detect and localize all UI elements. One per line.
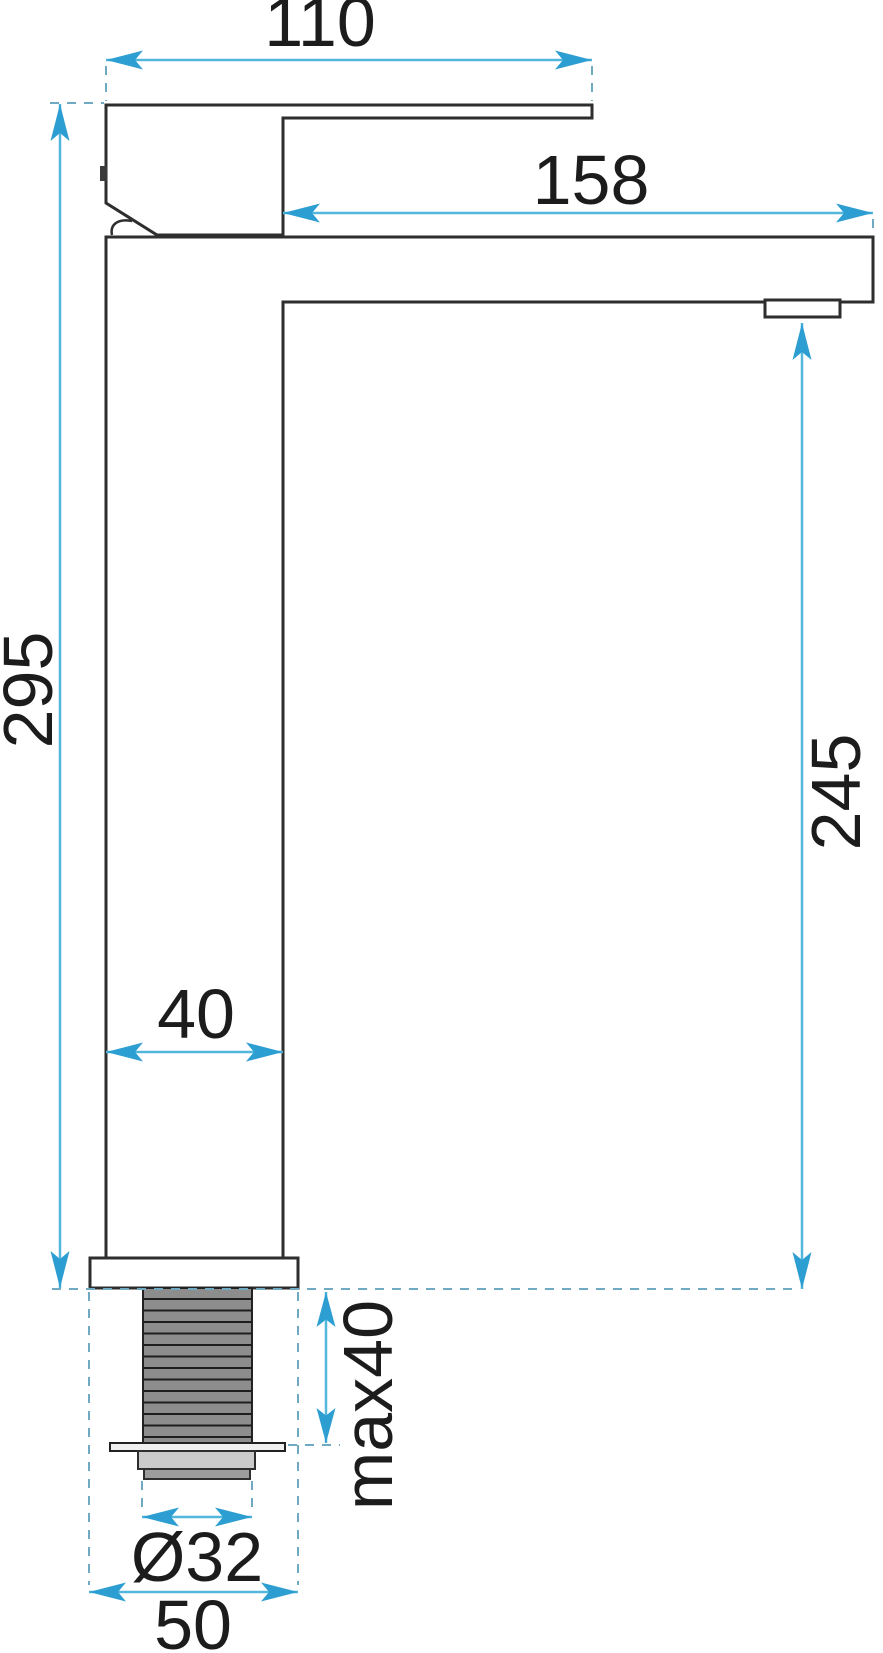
dim-total-height: 295 <box>0 104 70 1288</box>
faucet-body <box>90 105 873 1479</box>
dim-total-height-label: 295 <box>0 632 67 749</box>
aerator <box>765 300 840 317</box>
dim-thread-diameter: Ø32 <box>131 1508 263 1597</box>
dim-handle-width: 110 <box>106 0 592 70</box>
dim-spout-reach: 158 <box>283 141 873 223</box>
mounting-washer <box>110 1443 285 1451</box>
drawing-canvas: 110 158 295 245 40 max40 Ø <box>0 0 883 1653</box>
dim-spout-height: 245 <box>793 323 876 1289</box>
mounting-nut-cap <box>144 1469 250 1479</box>
handle-notch <box>100 166 107 181</box>
handle-lever <box>106 105 592 235</box>
faucet-column-and-spout <box>106 237 873 1258</box>
base-flange <box>90 1258 298 1288</box>
dim-spout-height-label: 245 <box>797 734 875 851</box>
faucet-technical-drawing: 110 158 295 245 40 max40 Ø <box>0 0 883 1653</box>
dim-max-mounting-thickness: max40 <box>317 1292 408 1510</box>
dim-spout-reach-label: 158 <box>533 141 650 219</box>
dim-thread-diameter-label: Ø32 <box>131 1518 263 1596</box>
dim-base-width: 50 <box>89 1583 298 1653</box>
handle-curve-detail <box>112 220 132 235</box>
dim-body-width-label: 40 <box>157 975 235 1053</box>
mounting-nut <box>138 1451 255 1469</box>
dim-base-width-label: 50 <box>154 1586 232 1653</box>
dim-max-mounting-label: max40 <box>329 1300 407 1510</box>
dim-handle-width-label: 110 <box>264 0 376 61</box>
